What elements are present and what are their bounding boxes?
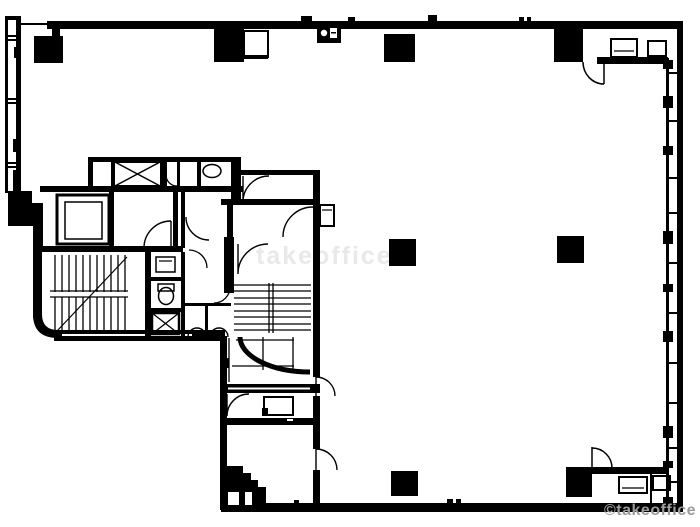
exterior-wall-top bbox=[47, 21, 683, 29]
column bbox=[391, 471, 418, 496]
column bbox=[214, 29, 244, 62]
center-watermark: takeoffice bbox=[256, 242, 393, 270]
column bbox=[384, 34, 415, 62]
column bbox=[557, 236, 584, 263]
column bbox=[554, 21, 583, 62]
ceiling-unit bbox=[317, 24, 341, 43]
column bbox=[389, 239, 416, 266]
column bbox=[566, 471, 592, 497]
column bbox=[34, 36, 63, 63]
bottom-watermark: ©takeoffice bbox=[604, 502, 696, 519]
floor-plan-drawing: takeoffice bbox=[0, 0, 700, 527]
floor-plan: takeoffice bbox=[0, 0, 700, 527]
